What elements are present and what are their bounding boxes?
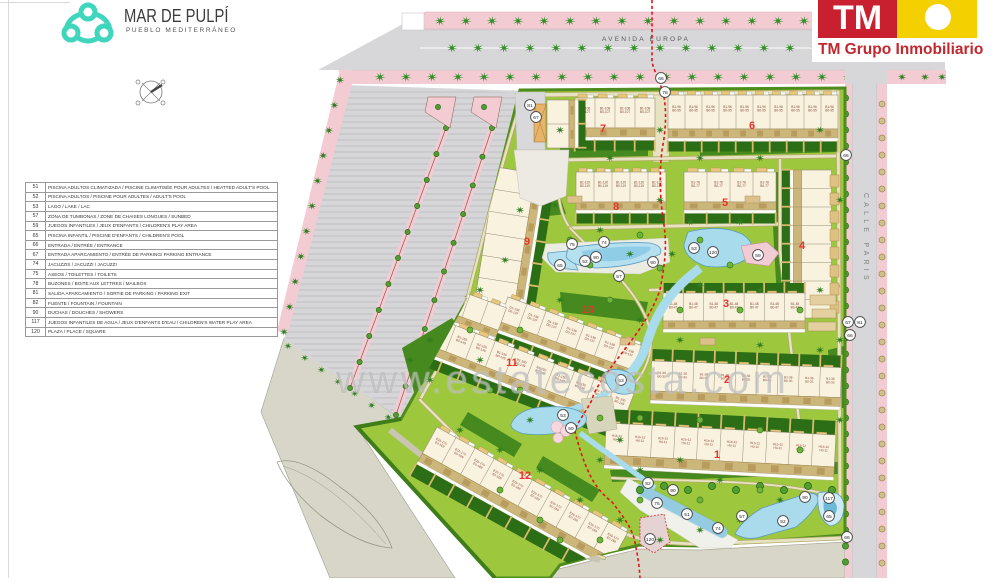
svg-text:B0-77: B0-77 — [714, 184, 723, 188]
svg-text:B0-107: B0-107 — [640, 110, 651, 114]
svg-text:B0-95: B0-95 — [757, 109, 766, 113]
svg-text:4: 4 — [799, 240, 806, 252]
svg-text:H0-11: H0-11 — [750, 445, 759, 449]
svg-text:59: 59 — [755, 253, 761, 259]
svg-text:65: 65 — [826, 514, 832, 520]
svg-text:90: 90 — [802, 495, 808, 501]
svg-text:B0-107: B0-107 — [620, 110, 631, 114]
svg-text:7: 7 — [600, 123, 606, 135]
svg-text:B0-95: B0-95 — [723, 109, 732, 113]
svg-text:B0-95: B0-95 — [672, 109, 681, 113]
svg-text:B0-95: B0-95 — [774, 109, 783, 113]
svg-text:B0-47: B0-47 — [770, 305, 779, 309]
svg-text:B0-35: B0-35 — [826, 380, 835, 384]
svg-text:53: 53 — [560, 413, 566, 419]
svg-text:B0-119: B0-119 — [634, 184, 644, 188]
svg-text:12: 12 — [519, 470, 531, 482]
svg-text:B0-95: B0-95 — [808, 109, 817, 113]
svg-text:90: 90 — [670, 488, 676, 494]
svg-text:AVENIDA EUROPA: AVENIDA EUROPA — [602, 36, 690, 43]
svg-text:B0-95: B0-95 — [791, 109, 800, 113]
svg-text:8: 8 — [613, 201, 619, 213]
svg-text:66: 66 — [847, 333, 853, 339]
svg-text:B0-47: B0-47 — [689, 305, 698, 309]
svg-text:H0-11: H0-11 — [659, 440, 668, 444]
svg-text:120: 120 — [646, 537, 654, 543]
svg-text:H0-11: H0-11 — [681, 441, 690, 445]
svg-text:B0-47: B0-47 — [669, 305, 678, 309]
svg-text:65: 65 — [557, 263, 563, 269]
svg-text:B0-107: B0-107 — [600, 110, 611, 114]
svg-text:10: 10 — [582, 304, 594, 316]
svg-text:67: 67 — [533, 115, 539, 121]
svg-text:52: 52 — [582, 259, 588, 265]
svg-text:B0-77: B0-77 — [737, 184, 746, 188]
svg-text:H0-11: H0-11 — [819, 448, 828, 452]
svg-text:6: 6 — [749, 120, 755, 132]
svg-text:H0-11: H0-11 — [773, 446, 782, 450]
svg-text:H0-11: H0-11 — [636, 439, 645, 443]
svg-text:H0-11: H0-11 — [727, 443, 736, 447]
svg-text:5: 5 — [722, 197, 728, 209]
svg-text:9: 9 — [524, 236, 530, 248]
svg-text:75: 75 — [654, 501, 660, 507]
svg-text:74: 74 — [715, 526, 721, 532]
svg-text:B0-95: B0-95 — [706, 109, 715, 113]
svg-text:B0-47: B0-47 — [709, 305, 718, 309]
svg-text:90: 90 — [650, 260, 656, 266]
svg-text:78: 78 — [662, 90, 668, 96]
svg-text:B0-77: B0-77 — [691, 184, 700, 188]
svg-text:81: 81 — [527, 103, 533, 109]
svg-text:67: 67 — [845, 320, 851, 326]
svg-text:B0-119: B0-119 — [598, 184, 608, 188]
svg-text:B0-119: B0-119 — [580, 184, 590, 188]
svg-text:52: 52 — [780, 519, 786, 525]
svg-text:B0-95: B0-95 — [740, 109, 749, 113]
svg-text:B0-35: B0-35 — [805, 380, 814, 384]
svg-text:57: 57 — [739, 514, 745, 520]
svg-text:120: 120 — [709, 250, 717, 256]
svg-text:B0-95: B0-95 — [825, 109, 834, 113]
svg-text:B0-77: B0-77 — [760, 184, 769, 188]
svg-text:117: 117 — [825, 496, 833, 502]
svg-text:90: 90 — [593, 255, 599, 261]
svg-text:66: 66 — [844, 535, 850, 541]
svg-text:59: 59 — [568, 426, 574, 432]
svg-text:66: 66 — [658, 76, 664, 82]
svg-text:75: 75 — [569, 242, 575, 248]
svg-text:82: 82 — [645, 481, 651, 487]
svg-text:1: 1 — [714, 449, 720, 461]
svg-text:B0-95: B0-95 — [689, 109, 698, 113]
svg-text:81: 81 — [857, 320, 863, 326]
svg-text:53: 53 — [691, 246, 697, 252]
svg-text:3: 3 — [723, 298, 729, 310]
svg-text:57: 57 — [616, 274, 622, 280]
svg-text:51: 51 — [684, 512, 690, 518]
svg-text:CALLE PARIS: CALLE PARIS — [862, 193, 869, 284]
svg-text:66: 66 — [843, 153, 849, 159]
svg-text:B0-119: B0-119 — [616, 184, 626, 188]
svg-text:H0-11: H0-11 — [704, 442, 713, 446]
svg-text:74: 74 — [601, 240, 607, 246]
svg-text:B0-47: B0-47 — [750, 305, 759, 309]
